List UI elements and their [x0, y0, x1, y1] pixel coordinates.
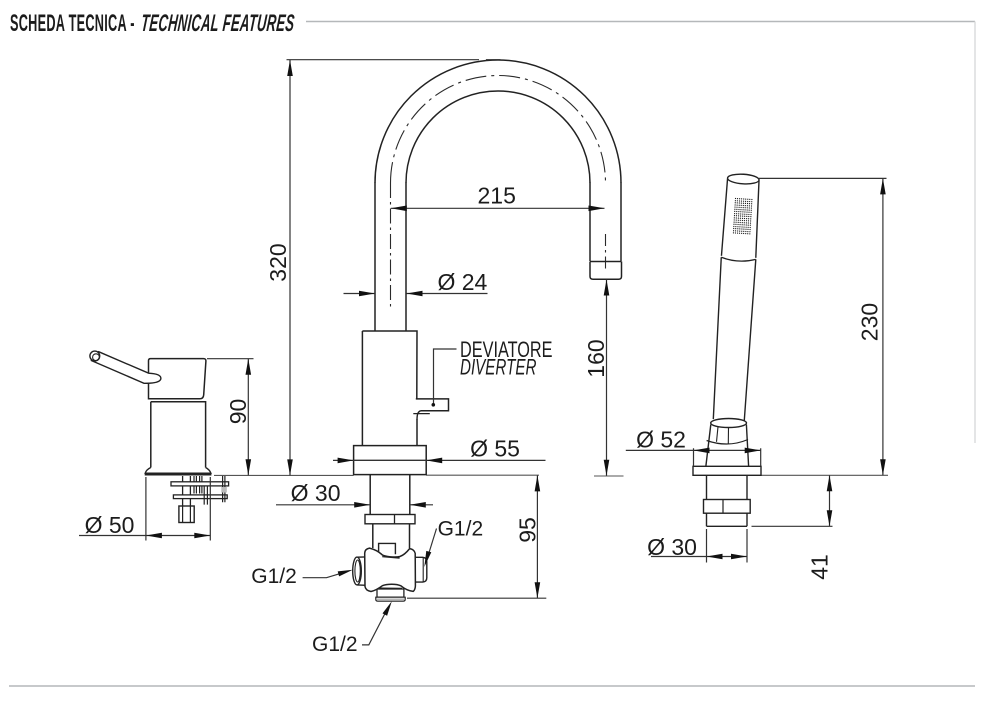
svg-text:95: 95: [515, 517, 541, 543]
svg-text:Ø 55: Ø 55: [470, 435, 520, 461]
svg-text:G1/2: G1/2: [438, 518, 484, 541]
svg-text:G1/2: G1/2: [251, 565, 297, 588]
svg-text:SCHEDA TECNICA -: SCHEDA TECNICA -: [10, 11, 135, 37]
svg-text:Ø 52: Ø 52: [636, 427, 686, 453]
svg-text:Ø 50: Ø 50: [85, 512, 135, 538]
svg-text:160: 160: [583, 339, 609, 377]
svg-text:Ø 30: Ø 30: [291, 480, 341, 506]
svg-text:DIVERTER: DIVERTER: [460, 356, 537, 380]
svg-text:90: 90: [225, 399, 251, 425]
svg-text:Ø 30: Ø 30: [647, 534, 697, 560]
svg-text:215: 215: [478, 183, 516, 209]
svg-text:41: 41: [807, 554, 833, 580]
svg-text:G1/2: G1/2: [312, 633, 358, 656]
svg-text:Ø 24: Ø 24: [437, 269, 487, 295]
svg-text:320: 320: [265, 243, 291, 281]
svg-text:230: 230: [857, 303, 883, 341]
svg-text:TECHNICAL FEATURES: TECHNICAL FEATURES: [140, 10, 296, 37]
